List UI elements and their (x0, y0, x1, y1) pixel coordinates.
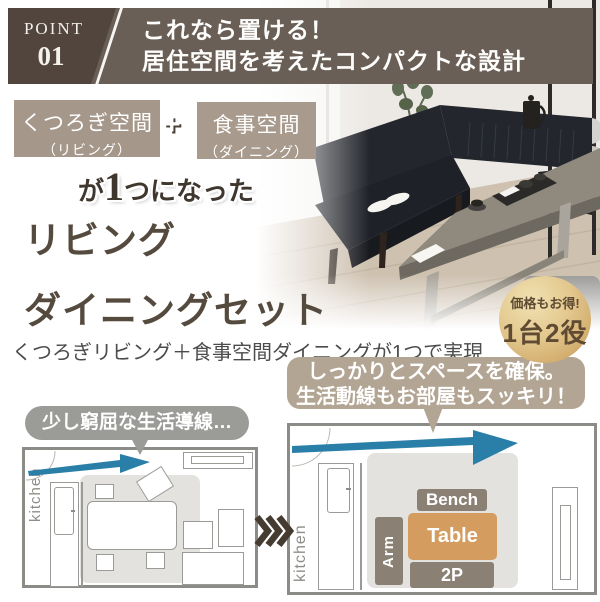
banner-heading-line2: 居住空間を考えたコンパクトな設計 (142, 46, 526, 77)
after-speech-bubble: しっかりとスペースを確保。 生活動線もお部屋もスッキリ！ (287, 357, 585, 409)
page-title-line1: リビング (24, 210, 328, 264)
merged-prefix: が (78, 176, 104, 206)
value-badge: 価格もお得! 1台2役 (499, 276, 591, 363)
flow-arrow-icon (290, 426, 594, 592)
bubble-tail (423, 407, 443, 433)
bubble-tail (131, 438, 149, 455)
merged-number: 1 (104, 164, 124, 209)
arrow-shape (292, 430, 518, 465)
badge-line1: 価格もお得! (499, 293, 591, 312)
after-bubble-line1: しっかりとスペースを確保。 (287, 360, 585, 385)
page-title: リビング ダイニングセット (24, 210, 328, 334)
badge-line2: 1台2役 (499, 313, 591, 350)
dining-space-title: 食事空間 (197, 109, 316, 139)
living-space-title: くつろぎ空間 (14, 107, 160, 137)
point-banner: POINT 01 これなら置ける！ 居住空間を考えたコンパクトな設計 (8, 8, 593, 84)
before-bubble-text: 少し窮屈な生活導線… (42, 412, 232, 433)
plus-icon: + (163, 108, 181, 142)
point-label: POINT (8, 19, 100, 39)
next-chevrons-icon (254, 514, 294, 548)
arrow-shape (28, 454, 150, 476)
dining-space-sub: （ダイニング） (197, 142, 316, 162)
point-number: 01 (8, 41, 94, 72)
floor-plan-before: kitchen (22, 447, 258, 588)
living-space-label: くつろぎ空間 （リビング） (14, 100, 160, 157)
merged-suffix: つになった (124, 176, 254, 206)
banner-heading-line1: これなら置ける！ (142, 15, 526, 46)
page-title-line2: ダイニングセット (24, 280, 328, 334)
flow-arrow-icon (25, 450, 255, 585)
floor-plan-after: kitchen Bench Table Arm 2P (287, 423, 597, 595)
before-speech-bubble: 少し窮屈な生活導線… (25, 406, 249, 440)
banner-heading: これなら置ける！ 居住空間を考えたコンパクトな設計 (142, 15, 526, 77)
dining-space-label: 食事空間 （ダイニング） (197, 102, 316, 159)
promo-page: POINT 01 これなら置ける！ 居住空間を考えたコンパクトな設計 くつろぎ空… (0, 0, 600, 602)
living-space-sub: （リビング） (14, 140, 160, 160)
merged-phrase: が1つになった (78, 164, 254, 214)
